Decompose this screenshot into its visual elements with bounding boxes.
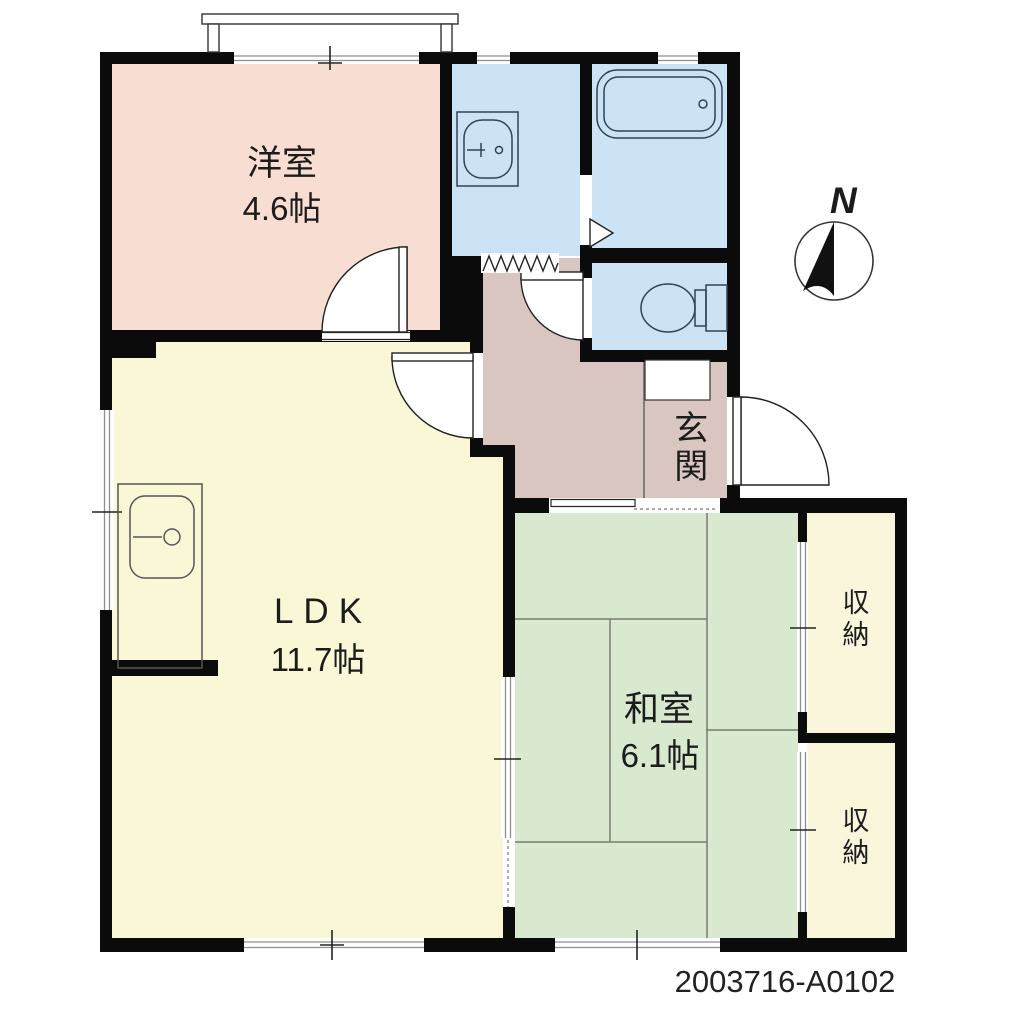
storage-top-sliding-door xyxy=(797,542,808,712)
western-room-label: 洋室 xyxy=(192,146,372,183)
bathroom-window xyxy=(658,52,698,64)
compass-icon xyxy=(795,222,873,300)
ldk-size: 11.7帖 xyxy=(228,643,408,678)
ldk-washitsu-sliding-door xyxy=(501,677,515,838)
storage-top-label: 収納 xyxy=(839,588,867,652)
genkan-label: 玄関 xyxy=(669,410,705,486)
entrance-door-swing xyxy=(741,397,829,485)
genkan-washitsu-slide-bar xyxy=(551,500,635,507)
ldk-label: LDK xyxy=(233,594,413,631)
ldk-door-leaf xyxy=(392,353,473,361)
western-room-size: 4.6帖 xyxy=(192,192,372,227)
bathroom-floor xyxy=(592,64,727,248)
storage-bottom-label: 収納 xyxy=(839,806,867,870)
japanese-room-size: 6.1帖 xyxy=(570,739,750,774)
washroom-floor xyxy=(452,64,580,256)
washroom-window xyxy=(477,52,510,64)
toilet-door-leaf xyxy=(521,272,583,280)
floor-plan-drawing xyxy=(0,0,1024,1024)
compass-north-label: N xyxy=(830,182,857,221)
ldk-left-window xyxy=(100,410,114,610)
plan-id: 2003716-A0102 xyxy=(650,966,920,999)
storage-bottom-sliding-door xyxy=(797,752,808,912)
western-room-door-leaf xyxy=(399,247,407,332)
floor-plan: 洋室 4.6帖 LDK 11.7帖 和室 6.1帖 玄関 収納 収納 N 200… xyxy=(0,0,1024,1024)
entrance-door-leaf xyxy=(733,397,741,485)
japanese-room-label: 和室 xyxy=(569,692,749,729)
shoe-cabinet xyxy=(645,360,710,400)
